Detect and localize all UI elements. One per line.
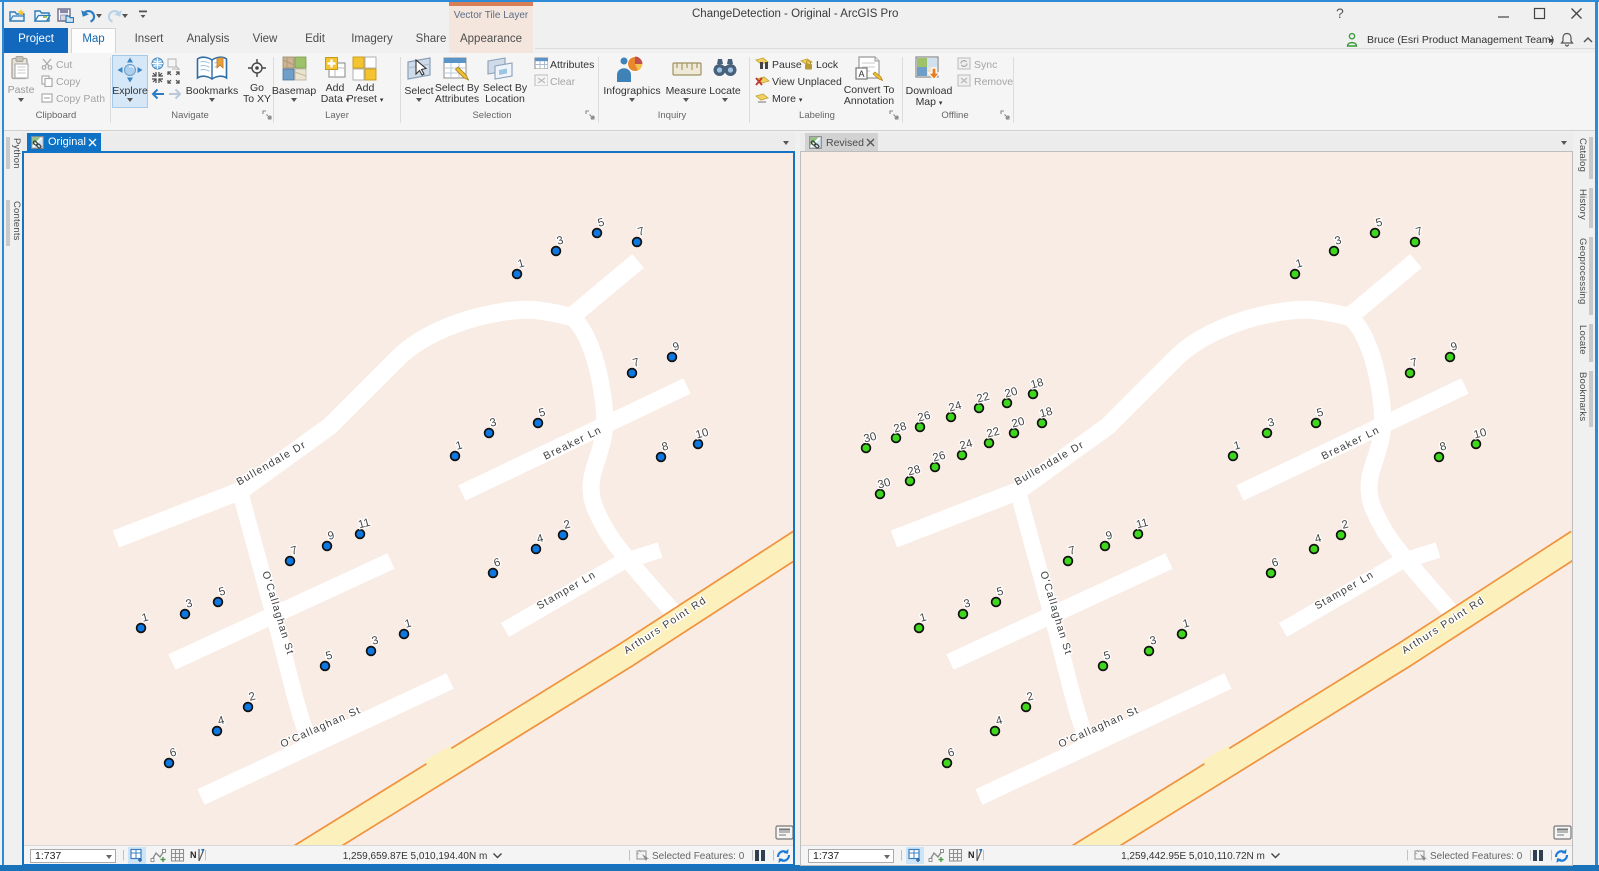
svg-text:N: N bbox=[968, 850, 975, 860]
svg-text:N: N bbox=[190, 850, 197, 860]
svg-text:A: A bbox=[858, 69, 864, 79]
